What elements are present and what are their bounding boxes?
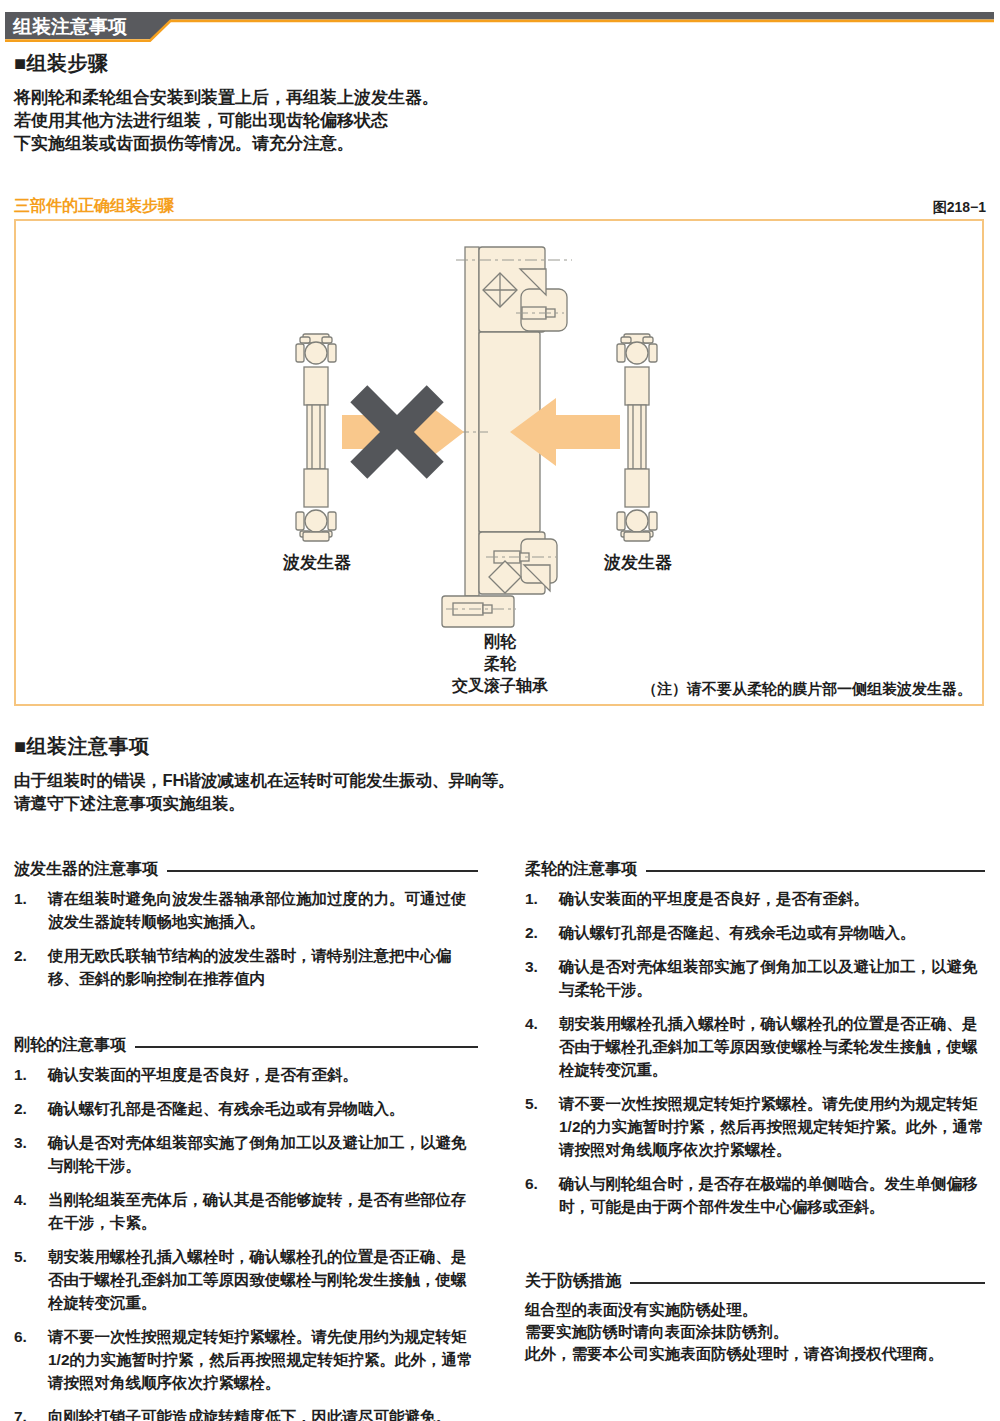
assembly-steps-heading: ■组装步骤 xyxy=(14,50,654,77)
rust-prevention-group: 关于防锈措施 组合型的表面没有实施防锈处理。 需要实施防锈时请向表面涂抹防锈剂。… xyxy=(525,1270,985,1365)
wave-generator-right-drawing xyxy=(617,334,657,541)
wave-generator-precautions-group: 波发生器的注意事项 1. 请在组装时避免向波发生器轴承部位施加过度的力。可通过使… xyxy=(14,858,478,990)
list-item: 5. 请不要一次性按照规定转矩拧紧螺栓。请先使用约为规定转矩1/2的力实施暂时拧… xyxy=(525,1092,985,1161)
paragraph-line: 将刚轮和柔轮组合安装到装置上后，再组装上波发生器。 xyxy=(14,86,654,109)
item-text: 朝安装用螺栓孔插入螺栓时，确认螺栓孔的位置是否正确、是否由于螺栓孔歪斜加工等原因… xyxy=(559,1012,985,1081)
label-wave-generator-right: 波发生器 xyxy=(578,551,698,574)
item-text: 请在组装时避免向波发生器轴承部位施加过度的力。可通过使波发生器旋转顺畅地实施插入… xyxy=(48,887,478,933)
page-header-tab: 组装注意事项 xyxy=(12,16,128,37)
paragraph-line: 组合型的表面没有实施防锈处理。 xyxy=(525,1299,985,1321)
group-title: 柔轮的注意事项 xyxy=(525,859,637,880)
figure-caption: 三部件的正确组装步骤 xyxy=(14,196,174,217)
paragraph-line: 若使用其他方法进行组装，可能出现齿轮偏移状态 xyxy=(14,109,654,132)
item-text: 确认是否对壳体组装部实施了倒角加工以及避让加工，以避免与柔轮干涉。 xyxy=(559,955,985,1001)
wave-generator-left-drawing xyxy=(296,334,336,541)
figure-caption-row: 三部件的正确组装步骤 图218−1 xyxy=(14,196,986,217)
item-number: 3. xyxy=(14,1131,48,1177)
document-page: 组装注意事项 ■组装步骤 将刚轮和柔轮组合安装到装置上后，再组装上波发生器。 若… xyxy=(0,0,1000,1421)
item-text: 向刚轮打销子可能造成旋转精度低下，因此请尽可能避免。 xyxy=(48,1405,478,1421)
paragraph-line: 需要实施防锈时请向表面涂抹防锈剂。 xyxy=(525,1321,985,1343)
group-title: 刚轮的注意事项 xyxy=(14,1035,126,1056)
item-number: 1. xyxy=(14,1063,48,1086)
item-text: 确认螺钉孔部是否隆起、有残余毛边或有异物啮入。 xyxy=(559,921,985,944)
list-item: 3. 确认是否对壳体组装部实施了倒角加工以及避让加工，以避免与柔轮干涉。 xyxy=(525,955,985,1001)
group-title-row: 波发生器的注意事项 xyxy=(14,858,478,880)
item-text: 朝安装用螺栓孔插入螺栓时，确认螺栓孔的位置是否正确、是否由于螺栓孔歪斜加工等原因… xyxy=(48,1245,478,1314)
assembly-precautions-heading: ■组装注意事项 xyxy=(14,733,714,760)
item-text: 请不要一次性按照规定转矩拧紧螺栓。请先使用约为规定转矩1/2的力实施暂时拧紧，然… xyxy=(48,1325,478,1394)
title-rule xyxy=(167,870,478,872)
paragraph-line: 请遵守下述注意事项实施组装。 xyxy=(14,792,714,815)
flexspline-precautions-group: 柔轮的注意事项 1. 确认安装面的平坦度是否良好，是否有歪斜。 2. 确认螺钉孔… xyxy=(525,858,985,1218)
item-number: 2. xyxy=(14,944,48,990)
left-column: 波发生器的注意事项 1. 请在组装时避免向波发生器轴承部位施加过度的力。可通过使… xyxy=(14,858,478,1421)
item-text: 确认螺钉孔部是否隆起、有残余毛边或有异物啮入。 xyxy=(48,1097,478,1120)
label-cross-roller-bearing: 交叉滚子轴承 xyxy=(350,676,650,697)
list-item: 4. 朝安装用螺栓孔插入螺栓时，确认螺栓孔的位置是否正确、是否由于螺栓孔歪斜加工… xyxy=(525,1012,985,1081)
header-gray-band xyxy=(5,12,994,39)
list-item: 6. 请不要一次性按照规定转矩拧紧螺栓。请先使用约为规定转矩1/2的力实施暂时拧… xyxy=(14,1325,478,1394)
title-rule xyxy=(135,1046,478,1048)
assembly-steps-section: ■组装步骤 将刚轮和柔轮组合安装到装置上后，再组装上波发生器。 若使用其他方法进… xyxy=(14,50,654,155)
label-circular-spline: 刚轮 xyxy=(350,632,650,653)
list-item: 6. 确认与刚轮组合时，是否存在极端的单侧啮合。发生单侧偏移时，可能是由于两个部… xyxy=(525,1172,985,1218)
title-rule xyxy=(646,870,985,872)
item-number: 5. xyxy=(14,1245,48,1314)
group-title-row: 刚轮的注意事项 xyxy=(14,1034,478,1056)
item-text: 使用无欧氏联轴节结构的波发生器时，请特别注意把中心偏移、歪斜的影响控制在推荐值内 xyxy=(48,944,478,990)
item-number: 4. xyxy=(14,1188,48,1234)
figure-box: 波发生器 波发生器 刚轮 柔轮 交叉滚子轴承 （注）请不要从柔轮的膜片部一侧组装… xyxy=(14,219,984,706)
title-rule xyxy=(630,1282,985,1284)
item-number: 6. xyxy=(525,1172,559,1218)
list-item: 4. 当刚轮组装至壳体后，确认其是否能够旋转，是否有些部位存在干涉，卡紧。 xyxy=(14,1188,478,1234)
item-text: 确认安装面的平坦度是否良好，是否有歪斜。 xyxy=(559,887,985,910)
label-wave-generator-left: 波发生器 xyxy=(257,551,377,574)
list-item: 3. 确认是否对壳体组装部实施了倒角加工以及避让加工，以避免与刚轮干涉。 xyxy=(14,1131,478,1177)
list-item: 1. 确认安装面的平坦度是否良好，是否有歪斜。 xyxy=(14,1063,478,1086)
item-number: 5. xyxy=(525,1092,559,1161)
item-number: 7. xyxy=(14,1405,48,1421)
item-text: 确认与刚轮组合时，是否存在极端的单侧啮合。发生单侧偏移时，可能是由于两个部件发生… xyxy=(559,1172,985,1218)
item-number: 2. xyxy=(14,1097,48,1120)
group-title-row: 关于防锈措施 xyxy=(525,1270,985,1292)
list-item: 2. 使用无欧氏联轴节结构的波发生器时，请特别注意把中心偏移、歪斜的影响控制在推… xyxy=(14,944,478,990)
paragraph-line: 由于组装时的错误，FH谐波减速机在运转时可能发生振动、异响等。 xyxy=(14,769,714,792)
list-item: 2. 确认螺钉孔部是否隆起、有残余毛边或有异物啮入。 xyxy=(14,1097,478,1120)
item-number: 4. xyxy=(525,1012,559,1081)
list-item: 1. 确认安装面的平坦度是否良好，是否有歪斜。 xyxy=(525,887,985,910)
section-header-band: 组装注意事项 xyxy=(0,0,1000,46)
group-title: 关于防锈措施 xyxy=(525,1271,621,1292)
list-item: 1. 请在组装时避免向波发生器轴承部位施加过度的力。可通过使波发生器旋转顺畅地实… xyxy=(14,887,478,933)
paragraph-line: 下实施组装或齿面损伤等情况。请充分注意。 xyxy=(14,132,654,155)
assembly-precautions-section: ■组装注意事项 由于组装时的错误，FH谐波减速机在运转时可能发生振动、异响等。 … xyxy=(14,733,714,815)
list-item: 7. 向刚轮打销子可能造成旋转精度低下，因此请尽可能避免。 xyxy=(14,1405,478,1421)
item-text: 当刚轮组装至壳体后，确认其是否能够旋转，是否有些部位存在干涉，卡紧。 xyxy=(48,1188,478,1234)
label-flexspline: 柔轮 xyxy=(350,654,650,675)
item-number: 6. xyxy=(14,1325,48,1394)
item-number: 2. xyxy=(525,921,559,944)
item-number: 1. xyxy=(14,887,48,933)
list-item: 5. 朝安装用螺栓孔插入螺栓时，确认螺栓孔的位置是否正确、是否由于螺栓孔歪斜加工… xyxy=(14,1245,478,1314)
circular-spline-precautions-group: 刚轮的注意事项 1. 确认安装面的平坦度是否良好，是否有歪斜。 2. 确认螺钉孔… xyxy=(14,1034,478,1421)
item-text: 请不要一次性按照规定转矩拧紧螺栓。请先使用约为规定转矩1/2的力实施暂时拧紧，然… xyxy=(559,1092,985,1161)
item-text: 确认是否对壳体组装部实施了倒角加工以及避让加工，以避免与刚轮干涉。 xyxy=(48,1131,478,1177)
paragraph-line: 此外，需要本公司实施表面防锈处理时，请咨询授权代理商。 xyxy=(525,1343,985,1365)
group-title-row: 柔轮的注意事项 xyxy=(525,858,985,880)
item-number: 3. xyxy=(525,955,559,1001)
item-text: 确认安装面的平坦度是否良好，是否有歪斜。 xyxy=(48,1063,478,1086)
item-number: 1. xyxy=(525,887,559,910)
right-column: 柔轮的注意事项 1. 确认安装面的平坦度是否良好，是否有歪斜。 2. 确认螺钉孔… xyxy=(525,858,985,1365)
figure-number: 图218−1 xyxy=(933,199,986,217)
list-item: 2. 确认螺钉孔部是否隆起、有残余毛边或有异物啮入。 xyxy=(525,921,985,944)
group-title: 波发生器的注意事项 xyxy=(14,859,158,880)
figure-note: （注）请不要从柔轮的膜片部一侧组装波发生器。 xyxy=(642,680,972,699)
